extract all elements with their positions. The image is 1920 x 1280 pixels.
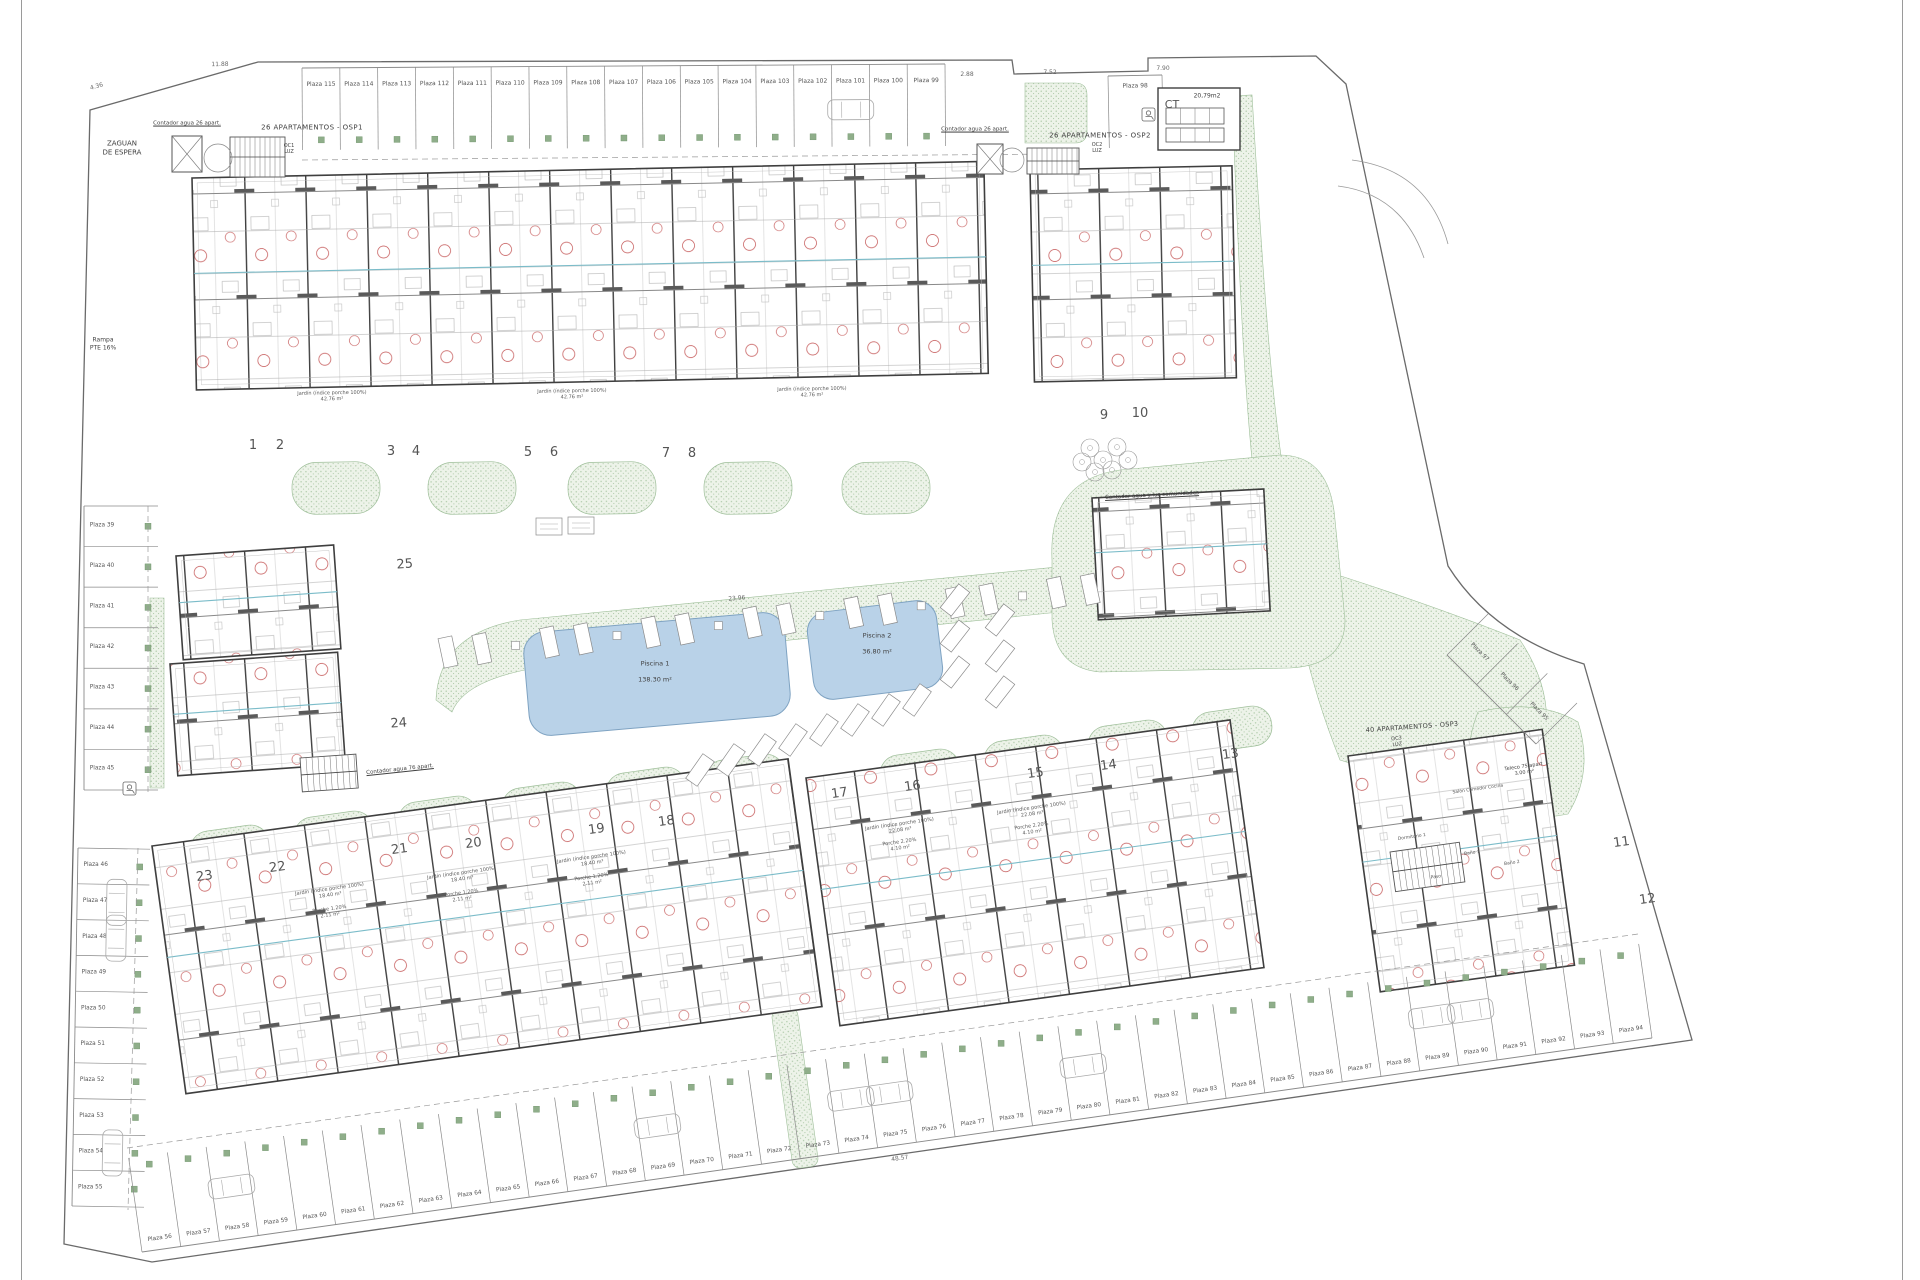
parking-space-label: Plaza 42 [90, 644, 115, 650]
plot-number: 25 [396, 556, 414, 572]
parking-stall-divider [73, 1170, 145, 1171]
building-osp1 [192, 161, 988, 390]
pool-1-area: 138.30 m² [638, 676, 672, 684]
parking-stall-divider [1329, 988, 1342, 1082]
oc2-luz-label: OC2 LUZ [1092, 142, 1103, 155]
parking-stall-divider [72, 1206, 144, 1207]
parking-stall-divider [415, 67, 416, 149]
plot-number: 13 [1221, 746, 1239, 763]
garden-mound [428, 461, 517, 515]
parking-row-baseline [142, 1038, 1652, 1252]
parking-stall-divider [642, 66, 643, 148]
parking-row-baseline [302, 64, 945, 68]
dimension-text: 11.88 [211, 61, 228, 68]
parking-space-label: Plaza 107 [609, 79, 638, 86]
planter-square [1269, 1002, 1275, 1008]
parked-car [865, 1080, 913, 1106]
parking-stall-divider [453, 67, 454, 149]
parking-stall-divider [980, 1037, 993, 1131]
pool-side-table [714, 622, 722, 630]
parking-space-label: Plaza 71 [728, 1151, 753, 1160]
planter-square [545, 135, 551, 141]
parking-stall-divider [555, 1098, 568, 1192]
parking-space-label: Plaza 48 [82, 934, 107, 940]
water-meter-osp1-label: Contador agua 26 apart. [153, 121, 221, 128]
parking-space-label: Plaza 41 [90, 603, 115, 609]
pool-1-label: Piscina 1 138.30 m² [638, 652, 672, 693]
parking-stall-divider [567, 66, 568, 148]
planter-square [727, 1079, 733, 1085]
parking-stall-divider [516, 1103, 529, 1197]
planter-square [379, 1128, 385, 1134]
parking-stall-divider [903, 1048, 916, 1142]
pool-1-name: Piscina 1 [638, 660, 672, 668]
parking-stall-divider [167, 1152, 180, 1246]
garden-label: Jardín (índice porche 100%) 42.76 m² [777, 387, 847, 400]
parking-space-label: Plaza 77 [960, 1118, 985, 1127]
parking-stall-divider [302, 68, 303, 150]
green-area [150, 598, 164, 788]
dimension-text: 4.36 [89, 81, 104, 91]
parked-car [633, 1113, 681, 1139]
plot-number: 24 [390, 715, 408, 731]
parking-space-label: Plaza 88 [1386, 1058, 1411, 1067]
parking-stall-divider [748, 1070, 761, 1164]
parking-space-label: Plaza 103 [760, 78, 789, 85]
planter-square [132, 1150, 138, 1156]
parking-stall-divider [605, 66, 606, 148]
plot-number: 11 [1612, 834, 1630, 851]
parking-space-label: Plaza 98 [1122, 82, 1148, 89]
parking-space-label: Plaza 111 [458, 80, 487, 87]
planter-square [886, 133, 892, 139]
parking-stall-divider [1639, 944, 1652, 1038]
planter-square [766, 1073, 772, 1079]
sun-lounger [940, 620, 970, 652]
water-meter-osp2-label: Contador agua 26 apart. [941, 127, 1009, 134]
planter-square [843, 1062, 849, 1068]
parking-space-label: Plaza 100 [874, 77, 903, 84]
parked-car [827, 1086, 875, 1112]
rampa-label: Rampa PTE 16% [90, 337, 116, 352]
planter-square [621, 135, 627, 141]
planter-square [262, 1145, 268, 1151]
planter-square [135, 936, 141, 942]
parking-space-label: Plaza 46 [83, 862, 108, 868]
parking-space-label: Plaza 81 [1115, 1096, 1140, 1105]
plot-number: 15 [1026, 765, 1044, 782]
garden-mound [292, 461, 381, 515]
planter-square [224, 1150, 230, 1156]
planter-square [688, 1084, 694, 1090]
parking-space-label: Plaza 55 [78, 1184, 103, 1190]
parking-stall-divider [1523, 960, 1536, 1054]
parking-stall-divider [756, 65, 757, 147]
parked-car [1059, 1053, 1107, 1079]
planter-square [1114, 1024, 1120, 1030]
plot-number: 22 [268, 859, 286, 876]
parking-stall-divider [75, 1027, 147, 1028]
parking-space-label: Plaza 65 [496, 1184, 521, 1193]
planter-square [134, 1043, 140, 1049]
parking-space-label: Plaza 60 [302, 1212, 327, 1221]
parking-space-label: Plaza 66 [534, 1179, 559, 1188]
plot-number: 16 [903, 778, 921, 795]
parking-space-label: Plaza 74 [844, 1135, 869, 1144]
planter-square [583, 135, 589, 141]
parked-car [106, 915, 127, 961]
parking-stall-divider [1406, 977, 1419, 1071]
transformer-ct-label: CT [1165, 98, 1179, 112]
planter-square [1192, 1013, 1198, 1019]
plot-number: 1 [249, 438, 257, 453]
planter-square [697, 135, 703, 141]
planter-square [456, 1117, 462, 1123]
plot-number: 19 [587, 821, 605, 838]
parking-row-left-upper: Plaza 39Plaza 40Plaza 41Plaza 42Plaza 43… [84, 506, 158, 790]
dimension-text: 2.88 [960, 71, 974, 78]
parking-stall-divider [632, 1087, 645, 1181]
turning-circle [1000, 148, 1024, 172]
aisle-center-line [302, 154, 1058, 160]
pool-2-name: Piscina 2 [862, 632, 892, 640]
plot-number: 9 [1100, 408, 1108, 423]
planter-square [133, 1079, 139, 1085]
tree-symbol [1094, 451, 1112, 469]
plot-number: 18 [657, 813, 675, 830]
parking-space-label: Plaza 69 [651, 1162, 676, 1171]
parking-space-label: Plaza 79 [1038, 1107, 1063, 1116]
planter-square [1501, 969, 1507, 975]
parking-space-label: Plaza 54 [79, 1149, 104, 1155]
parking-space-label: Plaza 72 [767, 1146, 792, 1155]
parking-space-label: Plaza 87 [1348, 1064, 1373, 1073]
parking-space-label: Plaza 64 [457, 1190, 482, 1199]
planter-square [611, 1095, 617, 1101]
parking-stall-divider [869, 64, 870, 146]
parking-stall-divider [129, 1158, 142, 1252]
planter-square [924, 133, 930, 139]
turning-circle [204, 144, 232, 172]
pool-side-table [1019, 592, 1027, 600]
sun-lounger [438, 636, 458, 668]
parking-space-label: Plaza 70 [689, 1157, 714, 1166]
parking-space-label: Plaza 104 [722, 78, 751, 85]
building-south-west [152, 759, 822, 1094]
planter-square [734, 134, 740, 140]
plot-number: 21 [390, 841, 408, 858]
garden-mound [842, 461, 931, 515]
parking-space-label: Plaza 114 [344, 81, 373, 88]
parking-space-label: Plaza 115 [306, 81, 335, 88]
plot-number: 3 [387, 444, 395, 459]
parking-stall-divider [361, 1125, 374, 1219]
block-osp2-label: 26 APARTAMENTOS - OSP2 [1049, 132, 1151, 141]
parking-stall-divider [907, 64, 908, 146]
parking-space-label: Plaza 56 [147, 1234, 172, 1243]
plot-number: 6 [550, 445, 558, 460]
planter-square [134, 1007, 140, 1013]
parked-car [1446, 998, 1494, 1024]
planter-square [772, 134, 778, 140]
parking-stall-divider [680, 66, 681, 148]
parking-stall-divider [477, 1109, 490, 1203]
plan-canvas: Plaza 115Plaza 114Plaza 113Plaza 112Plaz… [0, 0, 1920, 1280]
tree-symbol [1093, 470, 1098, 475]
plot-number: 14 [1099, 757, 1117, 774]
parking-space-label: Plaza 110 [496, 80, 525, 87]
parking-space-label: Plaza 62 [380, 1201, 405, 1210]
planter-square [1385, 986, 1391, 992]
sun-lounger [985, 676, 1015, 708]
parking-space-label: Plaza 61 [341, 1206, 366, 1215]
parking-space-label: Plaza 82 [1154, 1091, 1179, 1100]
parking-space-label: Plaza 44 [90, 725, 115, 731]
parking-space-label: Plaza 57 [186, 1228, 211, 1237]
parking-space-label: Plaza 99 [913, 77, 939, 84]
plot-number: 7 [662, 446, 670, 461]
parking-stall-divider [1135, 1015, 1148, 1109]
parking-space-label: Plaza 52 [80, 1077, 105, 1083]
planter-square [356, 137, 362, 143]
planter-square [1424, 980, 1430, 986]
site-plan-page: Plaza 115Plaza 114Plaza 113Plaza 112Plaz… [0, 0, 1920, 1280]
accessible-icon [123, 782, 136, 795]
building-mid-left-a [176, 545, 341, 660]
plot-number: 2 [276, 438, 284, 453]
planter-square [495, 1112, 501, 1118]
planter-square [394, 136, 400, 142]
parked-car [828, 100, 874, 120]
plot-number: 4 [412, 444, 420, 459]
parking-stall-divider [245, 1141, 258, 1235]
parking-space-label: Plaza 109 [533, 79, 562, 86]
planter-square [1347, 991, 1353, 997]
parking-stall-divider [945, 64, 946, 146]
parking-stall-divider [73, 1134, 145, 1135]
building-communal [1092, 489, 1270, 620]
parking-stall-divider [1484, 966, 1497, 1060]
parking-space-label: Plaza 63 [418, 1195, 443, 1204]
parking-stall-divider [671, 1081, 684, 1175]
planter-square [470, 136, 476, 142]
garden-mound [704, 461, 793, 515]
parking-stall-divider [1019, 1032, 1032, 1126]
sun-lounger [872, 694, 901, 727]
stairs-symbol [230, 137, 285, 177]
planter-square [432, 136, 438, 142]
planter-square [804, 1068, 810, 1074]
planter-square [650, 1090, 656, 1096]
parking-space-label: Plaza 108 [571, 79, 600, 86]
parking-stall-divider [206, 1147, 219, 1241]
tree-symbol [1101, 458, 1106, 463]
planter-square [507, 136, 513, 142]
planter-square [301, 1139, 307, 1145]
parking-stall-divider [378, 68, 379, 150]
planter-square [1153, 1018, 1159, 1024]
parking-stall-divider [942, 1043, 955, 1137]
tree-symbol [1108, 438, 1126, 456]
parking-space-label: Plaza 90 [1464, 1047, 1489, 1056]
parking-space-label: Plaza 89 [1425, 1053, 1450, 1062]
tree-symbol [1088, 446, 1093, 451]
tree-symbol [1080, 460, 1085, 465]
parking-stall-divider [1445, 971, 1458, 1065]
pool-equipment-box [536, 518, 562, 535]
parking-space-label: Plaza 94 [1619, 1025, 1644, 1034]
garden-label: Jardín (índice porche 100%) 42.76 m² [537, 389, 607, 402]
parking-space-label: Plaza 85 [1270, 1075, 1295, 1084]
planter-square [921, 1051, 927, 1057]
planter-square [318, 137, 324, 143]
parking-stall-divider [322, 1131, 335, 1225]
pool-side-table [613, 632, 621, 640]
parking-space-label: Plaza 80 [1077, 1102, 1102, 1111]
planter-square [998, 1040, 1004, 1046]
parking-space-label: Plaza 59 [263, 1217, 288, 1226]
parking-space-label: Plaza 43 [90, 685, 115, 691]
parking-stall-divider [76, 955, 148, 956]
parking-stall-divider [1174, 1010, 1187, 1104]
sun-lounger [940, 656, 970, 688]
parking-stall-divider [77, 920, 149, 921]
parking-space-label: Plaza 76 [922, 1124, 947, 1133]
sun-lounger [985, 640, 1015, 672]
stairs-symbol [1027, 148, 1079, 174]
parking-space-label: Plaza 83 [1193, 1085, 1218, 1094]
parking-space-label: Plaza 91 [1502, 1042, 1527, 1051]
planter-square [132, 1115, 138, 1121]
lift-symbol [977, 144, 1003, 174]
parking-space-label: Plaza 78 [999, 1113, 1024, 1122]
plot-number: 5 [524, 445, 532, 460]
parking-stall-divider [832, 65, 833, 147]
planter-square [1463, 975, 1469, 981]
sun-lounger [779, 724, 808, 757]
parking-stall-divider [1251, 999, 1264, 1093]
planter-square [1579, 958, 1585, 964]
parking-stall-divider [1600, 949, 1613, 1043]
planter-square [659, 135, 665, 141]
oc1-luz-label: OC1 LUZ [284, 143, 295, 156]
parked-car [106, 879, 127, 925]
planter-square [810, 134, 816, 140]
parking-stall-divider [1213, 1004, 1226, 1098]
parking-space-label: Plaza 86 [1309, 1069, 1334, 1078]
parking-stall-divider [74, 1099, 146, 1100]
pool-side-table [816, 612, 824, 620]
parking-space-label: Plaza 53 [79, 1113, 104, 1119]
parking-stall-divider [1097, 1021, 1110, 1115]
planter-square [572, 1101, 578, 1107]
plot-number: 10 [1132, 406, 1149, 421]
parking-space-label: Plaza 47 [83, 898, 108, 904]
zaguan-label: ZAGUAN DE ESPERA [103, 139, 142, 157]
parking-space-label: Plaza 50 [81, 1005, 106, 1011]
parking-space-label: Plaza 84 [1231, 1080, 1256, 1089]
planter-square [417, 1123, 423, 1129]
parked-car [102, 1130, 123, 1176]
planter-square [135, 971, 141, 977]
parking-stall-divider [340, 68, 341, 150]
pool-2-area: 36.80 m² [862, 648, 892, 656]
parking-space-label: Plaza 102 [798, 78, 827, 85]
parked-car [1408, 1003, 1456, 1029]
sun-lounger [841, 704, 870, 737]
plot-number: 23 [195, 868, 213, 885]
parking-stall-divider [1058, 1026, 1071, 1120]
parking-stall-divider [491, 67, 492, 149]
planter-square [185, 1156, 191, 1162]
tree-symbol [1073, 453, 1091, 471]
parking-stall-divider [529, 67, 530, 149]
parking-stall-divider [400, 1120, 413, 1214]
planter-square [959, 1046, 965, 1052]
plot-number: 8 [688, 446, 696, 461]
parking-space-label: Plaza 101 [836, 77, 865, 84]
parking-space-label: Plaza 75 [883, 1129, 908, 1138]
parking-space-label: Plaza 106 [647, 79, 676, 86]
parking-space-label: Plaza 67 [573, 1173, 598, 1182]
parking-space-label: Plaza 113 [382, 80, 411, 87]
planter-square [340, 1134, 346, 1140]
parking-stall-divider [76, 991, 148, 992]
parking-space-label: Plaza 49 [82, 970, 107, 976]
transformer-area-label: 20,79m2 [1194, 92, 1221, 100]
parking-stall-divider [826, 1059, 839, 1153]
parking-stall-divider [284, 1136, 297, 1230]
parking-stall-divider [718, 65, 719, 147]
planter-square [1540, 964, 1546, 970]
dimension-text: 7.90 [1156, 65, 1170, 72]
parking-space-label: Plaza 45 [90, 766, 115, 772]
tree-symbol [1126, 458, 1131, 463]
plot-number: 12 [1638, 891, 1656, 908]
planter-square [146, 1161, 152, 1167]
pool-side-table [512, 641, 520, 649]
parking-stall-divider [864, 1054, 877, 1148]
parked-car [207, 1173, 255, 1199]
planter-square [1230, 1007, 1236, 1013]
planter-square [882, 1057, 888, 1063]
parking-space-label: Plaza 39 [90, 522, 115, 528]
plot-number: 17 [830, 785, 848, 802]
stairs-symbol [300, 754, 358, 792]
building-osp2 [1030, 166, 1236, 382]
garden-label: Jardín (índice porche 100%) 42.76 m² [297, 391, 367, 404]
parking-stall-divider [77, 884, 149, 885]
parking-space-label: Plaza 40 [90, 563, 115, 569]
parking-space-label: Plaza 93 [1580, 1031, 1605, 1040]
parking-row-top: Plaza 115Plaza 114Plaza 113Plaza 112Plaz… [302, 64, 946, 150]
parking-space-label: Plaza 58 [225, 1223, 250, 1232]
parking-stall-divider [438, 1114, 451, 1208]
pool-equipment-box [568, 517, 594, 534]
parking-space-label: Plaza 112 [420, 80, 449, 87]
parking-stall-divider [1290, 993, 1303, 1087]
planter-square [848, 134, 854, 140]
parking-space-label: Plaza 105 [685, 78, 714, 85]
planter-square [1308, 996, 1314, 1002]
garden-mound [568, 461, 657, 515]
planter-square [131, 1186, 137, 1192]
oc3-luz-label: OC3 LUZ [1391, 735, 1403, 749]
dimension-text: 48.57 [891, 1154, 909, 1163]
dimension-text: 7.52 [1043, 69, 1057, 76]
pool-2-label: Piscina 2 36.80 m² [862, 624, 892, 665]
curved-path-edge [1352, 160, 1448, 244]
